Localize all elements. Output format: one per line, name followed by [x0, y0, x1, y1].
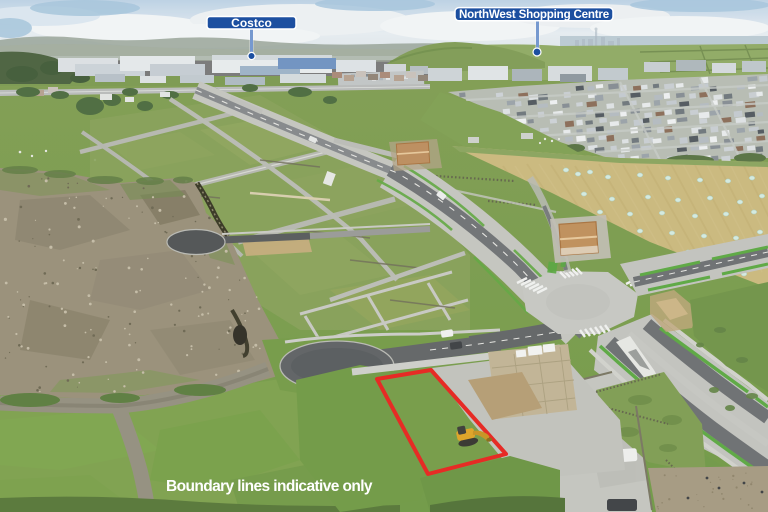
- svg-text:NorthWest Shopping Centre: NorthWest Shopping Centre: [459, 8, 610, 21]
- svg-text:Boundary lines indicative only: Boundary lines indicative only: [166, 478, 373, 495]
- svg-text:Costco: Costco: [231, 16, 272, 30]
